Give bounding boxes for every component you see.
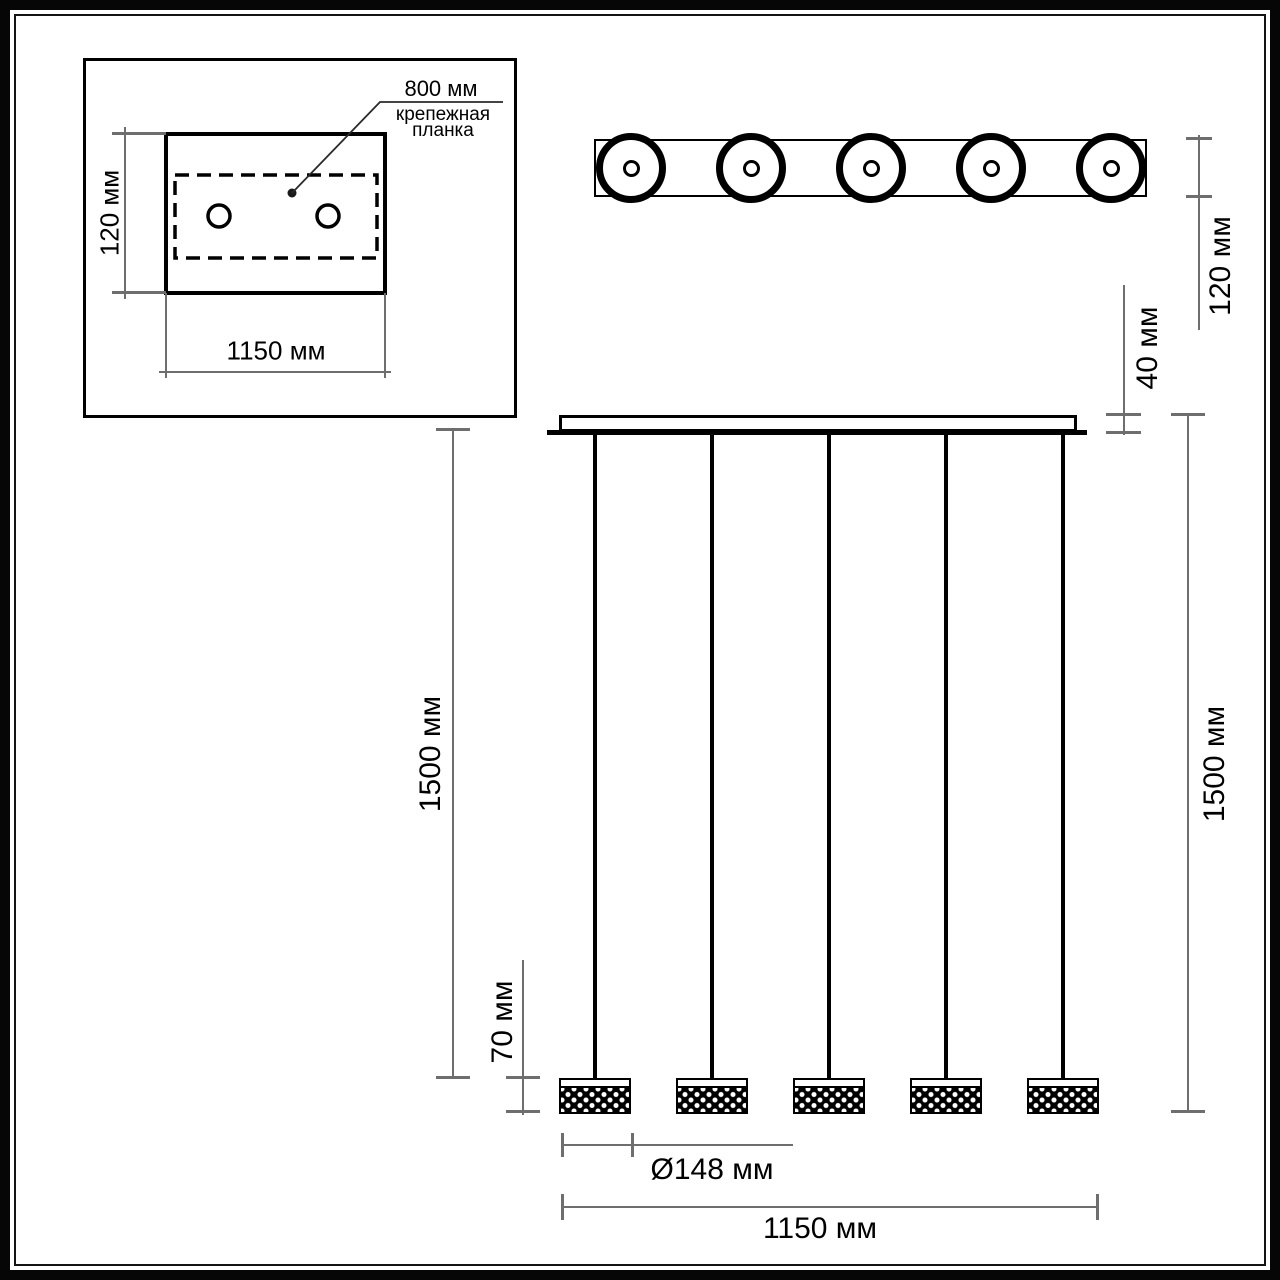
dim-inset-height-tick-top — [112, 132, 166, 135]
dim-suspension-left-line — [452, 430, 454, 1078]
pendant-shade-2 — [676, 1078, 748, 1114]
dim-suspension-right-label: 1500 мм — [1198, 706, 1232, 822]
pendant-wire-5 — [1061, 434, 1065, 1080]
dim-shade-height-tick-top — [506, 1076, 540, 1079]
pendant-wire-4 — [944, 434, 948, 1080]
shade-1-band — [561, 1080, 629, 1088]
dim-inset-width-ext-left — [165, 293, 167, 378]
top-view-lamp-4-hole — [983, 160, 1000, 177]
shade-4-body — [912, 1088, 980, 1112]
top-view-lamp-1-hole — [623, 160, 640, 177]
top-view-lamp-1 — [596, 133, 666, 203]
label-mounting-bar-caption: крепежная планка — [396, 107, 490, 139]
top-view-lamp-3 — [836, 133, 906, 203]
top-view-lamp-4 — [956, 133, 1026, 203]
shade-4-band — [912, 1080, 980, 1088]
dim-overall-width-tick-right — [1096, 1194, 1099, 1220]
shade-2-body — [678, 1088, 746, 1112]
label-mounting-bar-caption-line2: планка — [396, 123, 490, 139]
inset-panel: 800 мм крепежная планка 120 мм 1150 мм — [83, 58, 517, 418]
dim-shade-height-line — [522, 960, 524, 1115]
dim-suspension-left-tick-bottom — [436, 1076, 470, 1079]
pendant-wire-2 — [710, 434, 714, 1080]
dim-suspension-right-tick-top — [1171, 413, 1205, 416]
mounting-hole-left — [208, 205, 230, 227]
dim-shade-diameter-label: Ø148 мм — [651, 1153, 774, 1187]
top-view-lamp-5 — [1076, 133, 1146, 203]
dim-shade-height-tick-bottom — [506, 1110, 540, 1113]
dim-canopy-thickness-tick-top — [1106, 413, 1141, 416]
shade-2-band — [678, 1080, 746, 1088]
dim-shade-height-label: 70 мм — [486, 981, 520, 1064]
shade-5-band — [1029, 1080, 1097, 1088]
dim-inset-width-label: 1150 мм — [227, 336, 326, 367]
pendant-wire-3 — [827, 434, 831, 1080]
dim-shade-diameter-line — [562, 1144, 793, 1146]
dim-suspension-left-tick-top — [436, 428, 470, 431]
dim-suspension-right-line — [1187, 415, 1189, 1113]
dim-inset-width-ext-right — [384, 293, 386, 378]
shade-5-body — [1029, 1088, 1097, 1112]
shade-3-body — [795, 1088, 863, 1112]
mounting-plate-dashed-outline — [175, 175, 377, 258]
dim-topview-width-line — [1198, 135, 1200, 330]
dim-inset-height-label: 120 мм — [95, 170, 126, 256]
shade-3-band — [795, 1080, 863, 1088]
dim-suspension-left-label: 1500 мм — [414, 696, 448, 812]
dim-overall-width-line — [562, 1206, 1097, 1208]
dim-topview-width-tick-bottom — [1186, 195, 1212, 198]
top-view-lamp-3-hole — [863, 160, 880, 177]
label-mounting-bar-length: 800 мм — [404, 76, 477, 102]
pendant-shade-4 — [910, 1078, 982, 1114]
top-view-lamp-2-hole — [743, 160, 760, 177]
shade-1-body — [561, 1088, 629, 1112]
dim-inset-height-tick-bottom — [112, 291, 166, 294]
mounting-hole-right — [317, 205, 339, 227]
dim-canopy-thickness-label: 40 мм — [1131, 307, 1165, 390]
top-view-lamp-5-hole — [1103, 160, 1120, 177]
dim-suspension-right-tick-bottom — [1171, 1110, 1205, 1113]
dim-topview-width-tick-top — [1186, 137, 1212, 140]
dim-overall-width-tick-left — [561, 1194, 564, 1220]
pendant-shade-5 — [1027, 1078, 1099, 1114]
dim-shade-diameter-tick-left — [561, 1133, 564, 1157]
pendant-shade-3 — [793, 1078, 865, 1114]
pendant-shade-1 — [559, 1078, 631, 1114]
dim-topview-width-label: 120 мм — [1204, 216, 1238, 316]
dim-overall-width-label: 1150 мм — [763, 1212, 877, 1246]
canopy-flange — [547, 430, 1087, 435]
dim-canopy-thickness-tick-bottom — [1106, 431, 1141, 434]
pendant-wire-1 — [593, 434, 597, 1080]
dim-inset-width-line — [159, 371, 391, 373]
dim-shade-diameter-tick-right — [631, 1133, 634, 1157]
inset-canopy-outline — [166, 134, 385, 293]
top-view-lamp-2 — [716, 133, 786, 203]
